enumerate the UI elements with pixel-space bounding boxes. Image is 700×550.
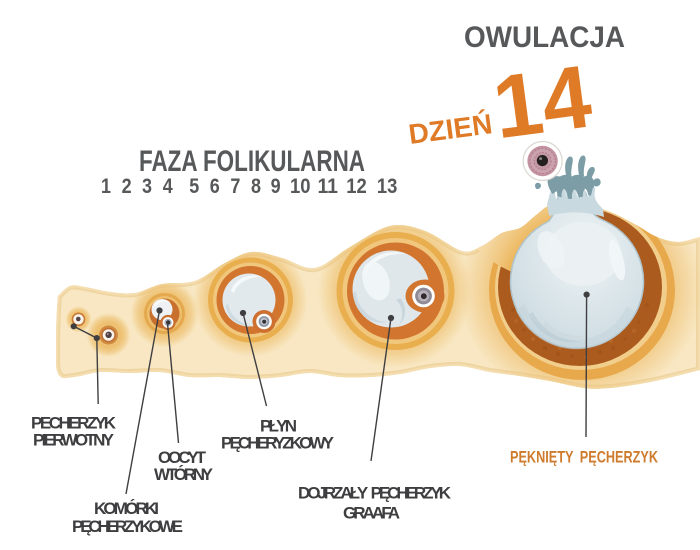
svg-text:2: 2	[122, 174, 132, 198]
svg-text:7: 7	[230, 174, 240, 198]
svg-text:OWULACJA: OWULACJA	[464, 21, 625, 54]
svg-text:WTÓRNY: WTÓRNY	[154, 465, 214, 484]
svg-text:6: 6	[210, 174, 220, 198]
svg-text:PĘCHERYZKOWY: PĘCHERYZKOWY	[221, 434, 335, 453]
svg-text:PĘCHERZYKOWE: PĘCHERZYKOWE	[72, 517, 183, 536]
svg-text:KOMÓRKI: KOMÓRKI	[94, 499, 159, 518]
svg-text:DZIEŃ: DZIEŃ	[407, 108, 494, 150]
svg-text:12: 12	[346, 174, 367, 198]
svg-text:1: 1	[101, 174, 111, 198]
svg-text:11: 11	[317, 174, 338, 198]
svg-text:4: 4	[163, 174, 173, 198]
svg-text:10: 10	[290, 174, 311, 198]
svg-text:PĘKNIĘTY PĘCHERZYK: PĘKNIĘTY PĘCHERZYK	[510, 448, 659, 467]
svg-text:3: 3	[142, 174, 152, 198]
svg-text:5: 5	[189, 174, 199, 198]
svg-text:8: 8	[251, 174, 261, 198]
svg-text:PIERWOTNY: PIERWOTNY	[33, 431, 115, 450]
svg-text:9: 9	[271, 174, 281, 198]
svg-text:DOJRZAŁY PĘCHERZYK: DOJRZAŁY PĘCHERZYK	[298, 484, 452, 503]
svg-text:14: 14	[487, 45, 597, 157]
svg-text:13: 13	[377, 174, 398, 198]
svg-text:GRAAFA: GRAAFA	[343, 504, 400, 523]
